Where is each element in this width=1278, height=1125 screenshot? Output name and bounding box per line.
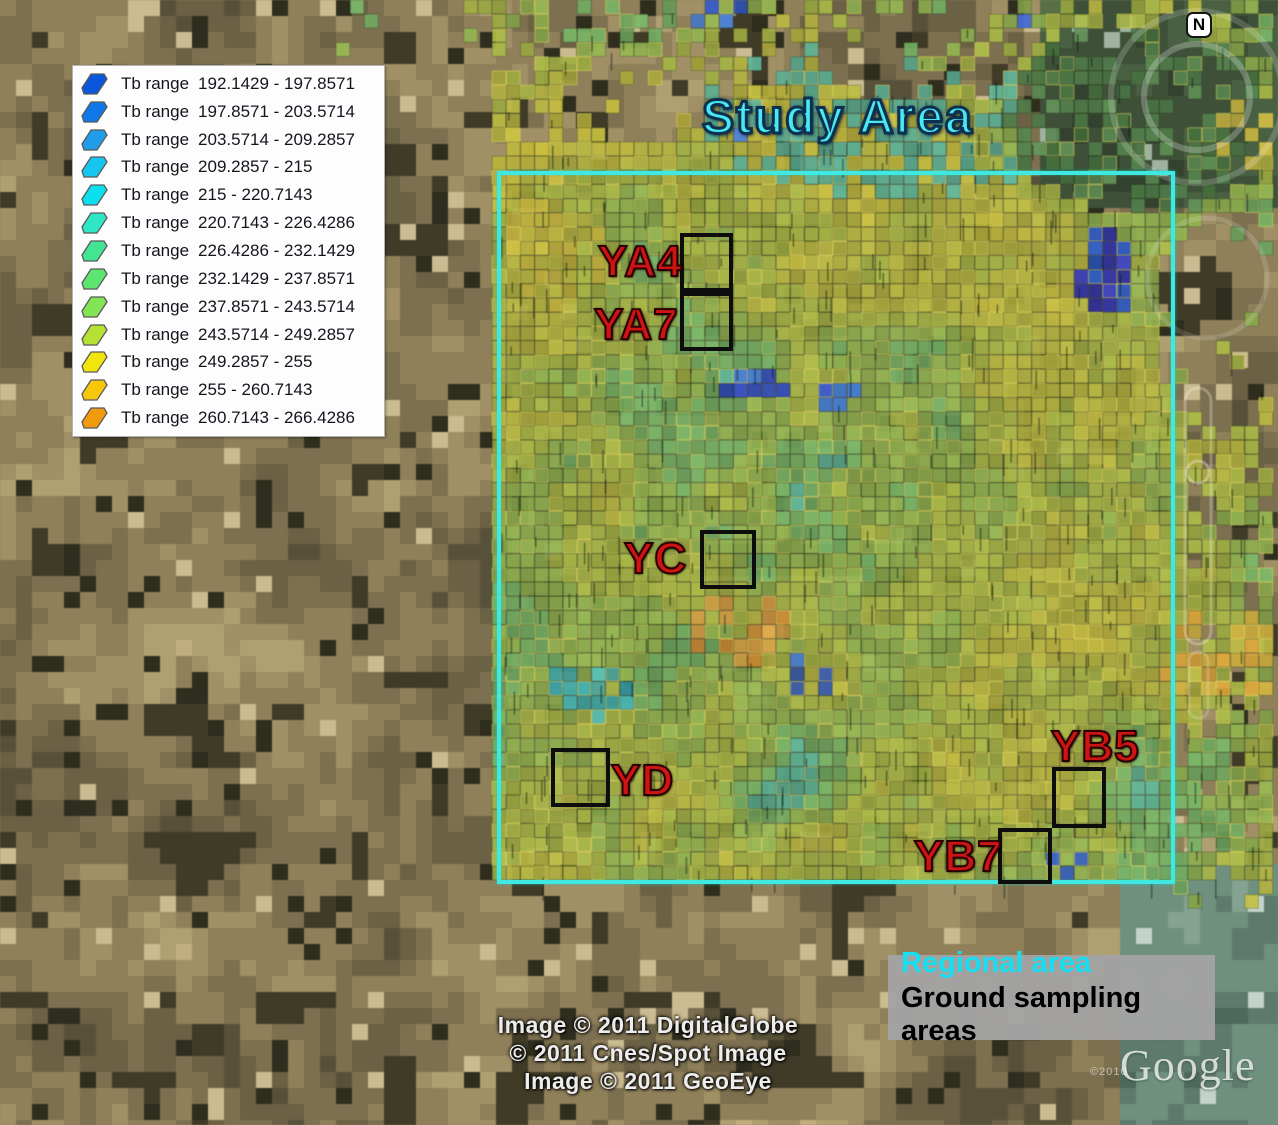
google-earth-viewport: YA4YA7YCYDYB5YB7 Study Area Tb range192.… xyxy=(0,0,1278,1125)
tb-range-value: 260.7143 - 266.4286 xyxy=(198,408,355,428)
legend-row: Tb range249.2857 - 255 xyxy=(81,349,384,376)
legend-row: Tb range197.8571 - 203.5714 xyxy=(81,98,384,125)
tb-range-swatch-icon xyxy=(81,129,108,151)
tb-range-swatch-icon xyxy=(81,184,108,206)
attribution-line-2: © 2011 Cnes/Spot Image xyxy=(468,1040,828,1067)
tb-range-swatch-icon xyxy=(81,268,108,290)
site-label-YB5: YB5 xyxy=(1051,722,1140,772)
ground-sampling-key-label: Ground sampling areas xyxy=(901,982,1215,1048)
site-label-YB7: YB7 xyxy=(914,832,1003,882)
tb-range-swatch-icon xyxy=(81,296,108,318)
legend-row: Tb range220.7143 - 226.4286 xyxy=(81,210,384,237)
legend-entry-prefix: Tb range xyxy=(121,241,189,261)
tb-range-value: 203.5714 - 209.2857 xyxy=(198,130,355,150)
tb-range-swatch-icon xyxy=(81,156,108,178)
legend-entry-prefix: Tb range xyxy=(121,325,189,345)
site-label-YA7: YA7 xyxy=(594,300,679,350)
tb-range-swatch-icon xyxy=(81,212,108,234)
attribution-line-1: Image © 2011 DigitalGlobe xyxy=(468,1012,828,1039)
legend-entry-prefix: Tb range xyxy=(121,269,189,289)
legend-entry-prefix: Tb range xyxy=(121,74,189,94)
legend-entry-prefix: Tb range xyxy=(121,102,189,122)
ground-sampling-box-YB5 xyxy=(1052,767,1106,828)
tb-range-value: 232.1429 - 237.8571 xyxy=(198,269,355,289)
ground-sampling-box-YD xyxy=(551,748,610,807)
legend-row: Tb range203.5714 - 209.2857 xyxy=(81,126,384,153)
tb-range-value: 255 - 260.7143 xyxy=(198,380,312,400)
tb-range-value: 220.7143 - 226.4286 xyxy=(198,213,355,233)
legend-row: Tb range260.7143 - 266.4286 xyxy=(81,405,384,432)
ground-sampling-box-YC xyxy=(700,530,756,589)
legend-row: Tb range192.1429 - 197.8571 xyxy=(81,70,384,97)
tb-range-swatch-icon xyxy=(81,240,108,262)
legend-row: Tb range209.2857 - 215 xyxy=(81,154,384,181)
site-label-YD: YD xyxy=(611,756,674,806)
legend-row: Tb range232.1429 - 237.8571 xyxy=(81,265,384,292)
tb-range-value: 249.2857 - 255 xyxy=(198,352,312,372)
tb-range-value: 243.5714 - 249.2857 xyxy=(198,325,355,345)
legend-row: Tb range226.4286 - 232.1429 xyxy=(81,237,384,264)
north-compass-button[interactable]: N xyxy=(1186,12,1212,38)
site-label-YC: YC xyxy=(624,534,687,584)
site-label-YA4: YA4 xyxy=(598,237,683,287)
legend-entry-prefix: Tb range xyxy=(121,185,189,205)
legend-row: Tb range255 - 260.7143 xyxy=(81,377,384,404)
tb-range-value: 237.8571 - 243.5714 xyxy=(198,297,355,317)
tb-range-value: 215 - 220.7143 xyxy=(198,185,312,205)
tb-range-swatch-icon xyxy=(81,351,108,373)
tb-range-swatch-icon xyxy=(81,324,108,346)
tb-range-swatch-icon xyxy=(81,73,108,95)
tb-range-swatch-icon xyxy=(81,379,108,401)
tb-range-swatch-icon xyxy=(81,407,108,429)
legend-entry-prefix: Tb range xyxy=(121,297,189,317)
map-key-box: Regional area Ground sampling areas xyxy=(888,955,1215,1040)
attribution-line-3: Image © 2011 GeoEye xyxy=(468,1068,828,1095)
tb-range-value: 226.4286 - 232.1429 xyxy=(198,241,355,261)
legend-entry-prefix: Tb range xyxy=(121,380,189,400)
ground-sampling-box-YA4 xyxy=(680,233,733,292)
ground-sampling-box-YB7 xyxy=(998,828,1052,884)
google-logo-watermark: Google xyxy=(1120,1040,1256,1091)
legend-entry-prefix: Tb range xyxy=(121,352,189,372)
legend-entry-prefix: Tb range xyxy=(121,408,189,428)
ground-sampling-box-YA7 xyxy=(680,292,733,351)
tb-range-value: 209.2857 - 215 xyxy=(198,157,312,177)
legend-row: Tb range237.8571 - 243.5714 xyxy=(81,293,384,320)
regional-area-key-label: Regional area xyxy=(901,947,1215,980)
tb-range-value: 197.8571 - 203.5714 xyxy=(198,102,355,122)
tb-range-swatch-icon xyxy=(81,101,108,123)
tb-range-legend: Tb range192.1429 - 197.8571Tb range197.8… xyxy=(72,65,385,437)
watermark-year: ©2010 xyxy=(1090,1066,1128,1078)
legend-row: Tb range215 - 220.7143 xyxy=(81,182,384,209)
legend-entry-prefix: Tb range xyxy=(121,157,189,177)
legend-row: Tb range243.5714 - 249.2857 xyxy=(81,321,384,348)
legend-entry-prefix: Tb range xyxy=(121,130,189,150)
study-area-title: Study Area xyxy=(702,90,974,145)
imagery-attribution: Image © 2011 DigitalGlobe © 2011 Cnes/Sp… xyxy=(468,1012,828,1095)
tb-range-value: 192.1429 - 197.8571 xyxy=(198,74,355,94)
legend-entry-prefix: Tb range xyxy=(121,213,189,233)
